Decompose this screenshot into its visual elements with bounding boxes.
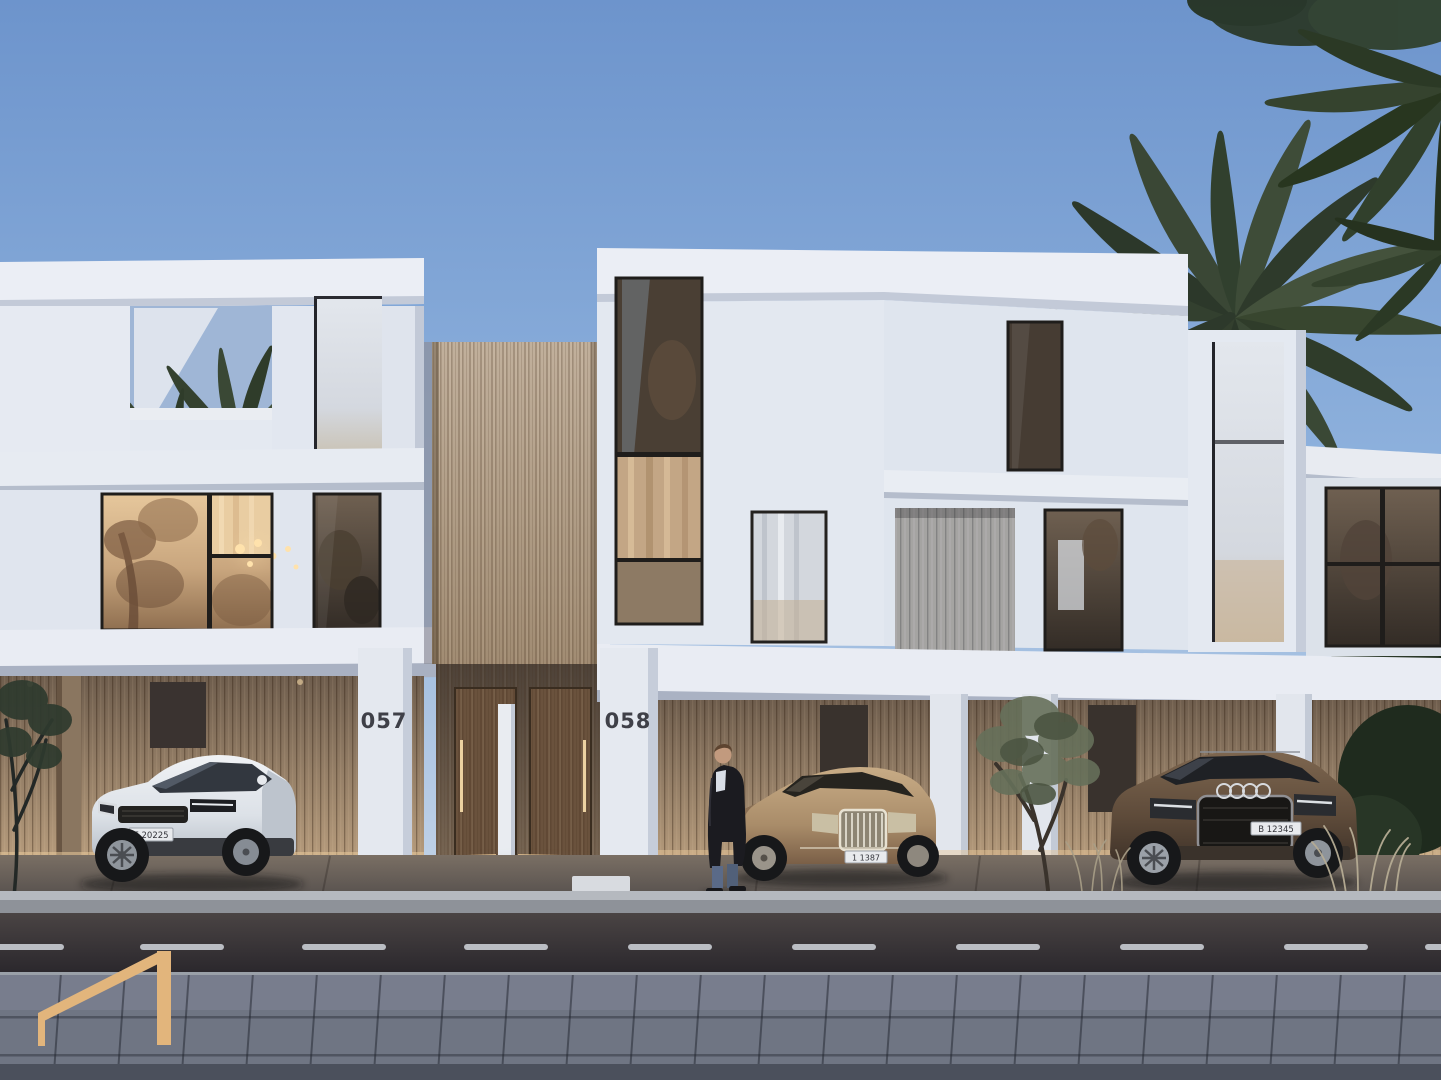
first-floor-window-b xyxy=(1045,510,1122,650)
entrance-step xyxy=(572,876,630,892)
wheel xyxy=(222,828,270,876)
street xyxy=(0,891,1441,1080)
asphalt-road xyxy=(0,913,1441,974)
logo-tick xyxy=(38,1013,45,1046)
wheel xyxy=(1127,831,1181,885)
svg-text:B 12345: B 12345 xyxy=(1258,825,1294,835)
double-height-window xyxy=(616,278,702,624)
curtain-window xyxy=(752,512,826,642)
sedan-grille xyxy=(840,810,886,850)
license-plate-sedan: 1 1387 xyxy=(845,851,887,863)
svg-text:1 1387: 1 1387 xyxy=(852,854,880,863)
house-number-058: 058 xyxy=(605,709,652,733)
wheel xyxy=(95,828,149,882)
house-number-057: 057 xyxy=(361,709,408,733)
wheel xyxy=(741,835,787,881)
scene-canvas: 057 xyxy=(0,0,1441,1080)
architectural-render: 057 xyxy=(0,0,1441,1080)
living-room-window xyxy=(102,494,299,630)
suv-grille xyxy=(118,806,188,823)
pier-bright-window xyxy=(1188,330,1306,652)
upper-bright-window xyxy=(314,296,382,456)
entry-door-right xyxy=(530,688,591,860)
wheel xyxy=(1293,828,1343,878)
upper-window-b xyxy=(1008,322,1062,470)
side-dark-window xyxy=(314,494,380,630)
curb-face xyxy=(0,900,1441,913)
sidewalk xyxy=(0,972,1441,1080)
right-wing xyxy=(1306,446,1441,656)
wheel xyxy=(897,835,939,877)
license-plate-brown-suv: B 12345 xyxy=(1251,822,1301,835)
logo-bar xyxy=(157,951,171,1045)
gray-textured-panel xyxy=(895,508,1015,654)
